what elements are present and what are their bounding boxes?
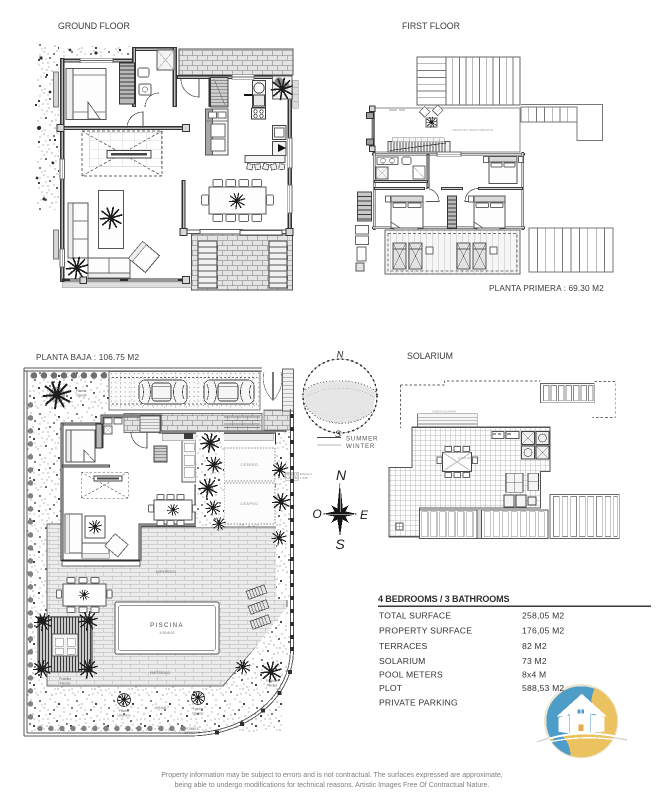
svg-text:S: S [335, 536, 345, 552]
svg-text:being able to undergo modifica: being able to undergo modifications for … [175, 782, 490, 789]
svg-text:Planta: Planta [76, 394, 85, 398]
svg-text:176,05 M2: 176,05 M2 [522, 626, 564, 636]
svg-text:CESPED: CESPED [241, 463, 259, 467]
svg-text:Posibles: Posibles [266, 679, 278, 683]
svg-text:Plantas: Plantas [267, 684, 278, 688]
svg-text:N: N [336, 467, 347, 483]
svg-text:PRIVATE PARKING: PRIVATE PARKING [379, 698, 458, 708]
svg-text:4 BEDROOMS / 3 BATHROOMS: 4 BEDROOMS / 3 BATHROOMS [378, 594, 510, 604]
svg-text:PLANTA PRIMERA : 69.30 M2: PLANTA PRIMERA : 69.30 M2 [489, 283, 604, 293]
svg-text:EMPEDRADO: EMPEDRADO [150, 671, 171, 675]
svg-text:PROPERTY SURFACE: PROPERTY SURFACE [379, 626, 472, 636]
svg-text:Property information may be su: Property information may be subject to e… [161, 772, 503, 779]
svg-text:FIRST FLOOR: FIRST FLOOR [402, 21, 460, 31]
svg-text:POOL METERS: POOL METERS [379, 670, 443, 680]
svg-text:Limonero: Limonero [117, 714, 131, 718]
svg-text:4.00x8.00: 4.00x8.00 [160, 631, 175, 635]
svg-text:E: E [360, 508, 369, 522]
svg-text:Plantas: Plantas [60, 682, 71, 686]
svg-text:PISCINA: PISCINA [150, 623, 184, 629]
svg-text:O: O [312, 507, 321, 521]
svg-text:1:145: 1:145 [300, 476, 308, 480]
svg-text:SUMMER: SUMMER [346, 436, 378, 443]
svg-text:Naranjo: Naranjo [192, 712, 203, 716]
svg-text:TERRACES: TERRACES [379, 641, 427, 651]
svg-text:GRAVA: GRAVA [156, 706, 168, 710]
svg-text:TOTAL SURFACE: TOTAL SURFACE [379, 610, 451, 620]
svg-text:73 M2: 73 M2 [522, 656, 547, 666]
svg-text:EMPEDRADO: EMPEDRADO [156, 570, 177, 574]
svg-text:CESPED: CESPED [241, 502, 259, 506]
svg-text:Posible: Posible [76, 389, 87, 393]
svg-text:GROUND FLOOR: GROUND FLOOR [58, 21, 130, 31]
svg-text:Posible: Posible [119, 709, 130, 713]
svg-text:SOLARIUM: SOLARIUM [407, 351, 453, 361]
svg-text:SUBIDA SOLARIUM: SUBIDA SOLARIUM [432, 410, 456, 414]
svg-text:PLANTA BAJA : 106.75 M2: PLANTA BAJA : 106.75 M2 [36, 353, 139, 362]
svg-text:ZONA CHILL OUT: ZONA CHILL OUT [458, 456, 481, 460]
svg-text:8x4 M: 8x4 M [522, 670, 546, 680]
svg-text:N: N [337, 350, 344, 360]
svg-text:TERRAZA DESCUBIERTA: TERRAZA DESCUBIERTA [452, 128, 493, 132]
svg-text:WINTER: WINTER [346, 443, 375, 450]
svg-text:Posible: Posible [193, 707, 204, 711]
svg-text:SOLARIUM: SOLARIUM [379, 656, 426, 666]
svg-text:Posibles: Posibles [59, 677, 71, 681]
svg-text:82 M2: 82 M2 [522, 641, 547, 651]
svg-text:588,53 M2: 588,53 M2 [522, 683, 564, 693]
svg-text:258,05 M2: 258,05 M2 [522, 610, 564, 620]
svg-text:PLOT: PLOT [379, 683, 403, 693]
